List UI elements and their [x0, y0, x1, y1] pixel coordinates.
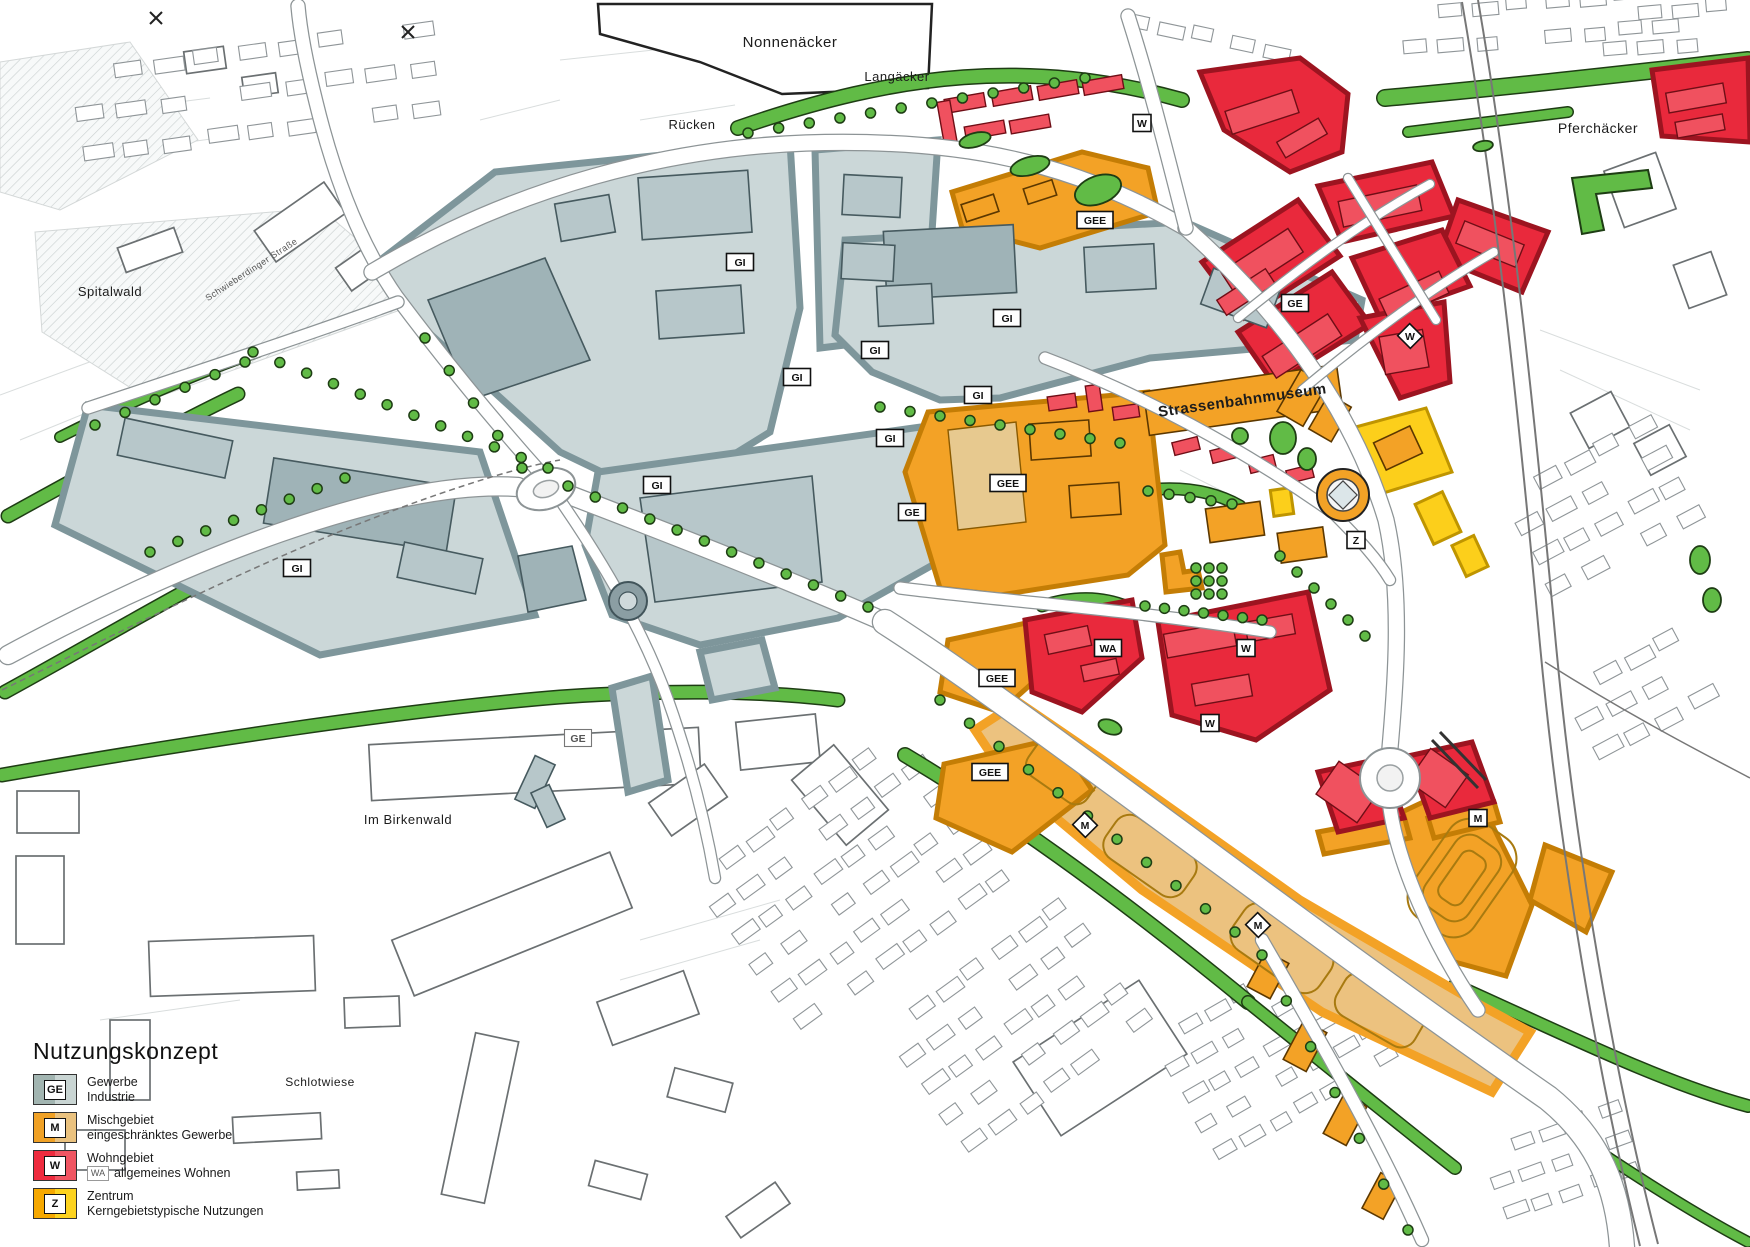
legend-item-w: WWohngebietWAallgemeines Wohnen — [33, 1150, 293, 1181]
legend-item-text: Mischgebieteingeschränktes Gewerbe — [87, 1112, 232, 1143]
zone-label-box-ge: GE — [1282, 295, 1309, 312]
legend-swatch-m: M — [33, 1112, 77, 1143]
svg-text:GI: GI — [884, 433, 895, 445]
legend-item-text: WohngebietWAallgemeines Wohnen — [87, 1150, 231, 1181]
legend-item-ge: GEGewerbeIndustrie — [33, 1074, 293, 1105]
place-label: Rücken — [668, 117, 715, 132]
legend: Nutzungskonzept GEGewerbeIndustrieMMisch… — [33, 1038, 293, 1226]
land-use-map-page: GIGIGIGIGIGIGIGIGEGEGEGEEGEEGEEGEEWWWWWA… — [0, 0, 1750, 1247]
zone-label-box-ge: GE — [899, 504, 926, 521]
zone-label-box-ge: GE — [565, 730, 592, 747]
svg-text:WA: WA — [1100, 643, 1117, 655]
svg-text:W: W — [1405, 331, 1415, 343]
zone-label-box-w: W — [1201, 715, 1219, 732]
legend-letter: M — [44, 1118, 66, 1138]
zone-label-box-gi: GI — [284, 560, 311, 577]
zone-label-box-gi: GI — [965, 387, 992, 404]
legend-letter: GE — [44, 1080, 66, 1100]
svg-text:GI: GI — [869, 345, 880, 357]
zone-label-box-gee: GEE — [990, 475, 1026, 492]
svg-text:GEE: GEE — [997, 478, 1019, 490]
zone-label-box-gi: GI — [994, 310, 1021, 327]
svg-text:M: M — [1254, 920, 1263, 932]
zone-label-box-gi: GI — [727, 254, 754, 271]
svg-text:W: W — [1205, 718, 1215, 730]
legend-item-text: GewerbeIndustrie — [87, 1074, 138, 1105]
svg-text:W: W — [1241, 643, 1251, 655]
zone-label-box-m: M — [1469, 810, 1487, 827]
svg-text:GI: GI — [651, 480, 662, 492]
zone-label-box-gee: GEE — [972, 764, 1008, 781]
zone-label-box-gee: GEE — [1077, 212, 1113, 229]
legend-letter: W — [44, 1156, 66, 1176]
place-label: Im Birkenwald — [364, 812, 452, 827]
legend-rows: GEGewerbeIndustrieMMischgebieteingeschrä… — [33, 1074, 293, 1219]
svg-text:GI: GI — [972, 390, 983, 402]
legend-item-text: ZentrumKerngebietstypische Nutzungen — [87, 1188, 264, 1219]
place-label: Langäcker — [864, 69, 929, 84]
svg-text:GE: GE — [904, 507, 919, 519]
place-label: Pferchäcker — [1558, 120, 1638, 136]
zone-label-box-gi: GI — [877, 430, 904, 447]
zone-label-box-gi: GI — [862, 342, 889, 359]
legend-swatch-ge: GE — [33, 1074, 77, 1105]
svg-text:W: W — [1137, 118, 1147, 130]
svg-text:M: M — [1081, 820, 1090, 832]
svg-text:GEE: GEE — [979, 767, 1001, 779]
zone-label-box-w: W — [1133, 115, 1151, 132]
legend-item-z: ZZentrumKerngebietstypische Nutzungen — [33, 1188, 293, 1219]
svg-text:GEE: GEE — [986, 673, 1008, 685]
legend-swatch-w: W — [33, 1150, 77, 1181]
legend-item-m: MMischgebieteingeschränktes Gewerbe — [33, 1112, 293, 1143]
svg-text:Z: Z — [1353, 535, 1360, 547]
svg-text:GE: GE — [1287, 298, 1302, 310]
zone-label-box-gi: GI — [784, 369, 811, 386]
place-label: Spitalwald — [78, 284, 142, 299]
legend-title: Nutzungskonzept — [33, 1038, 293, 1065]
legend-letter: Z — [44, 1194, 66, 1214]
place-label: Schlotwiese — [285, 1075, 355, 1089]
svg-text:GEE: GEE — [1084, 215, 1106, 227]
legend-wa-box: WA — [87, 1166, 109, 1181]
zone-label-box-wa: WA — [1095, 640, 1122, 657]
zone-label-box-z: Z — [1347, 532, 1365, 549]
zone-label-box-gi: GI — [644, 477, 671, 494]
svg-text:GI: GI — [1001, 313, 1012, 325]
svg-text:M: M — [1474, 813, 1483, 825]
svg-text:GI: GI — [734, 257, 745, 269]
svg-text:GI: GI — [791, 372, 802, 384]
zone-label-box-w: W — [1237, 640, 1255, 657]
svg-text:GI: GI — [291, 563, 302, 575]
legend-swatch-z: Z — [33, 1188, 77, 1219]
svg-text:GE: GE — [570, 733, 585, 745]
place-label: Nonnenäcker — [743, 34, 838, 51]
zone-label-box-gee: GEE — [979, 670, 1015, 687]
